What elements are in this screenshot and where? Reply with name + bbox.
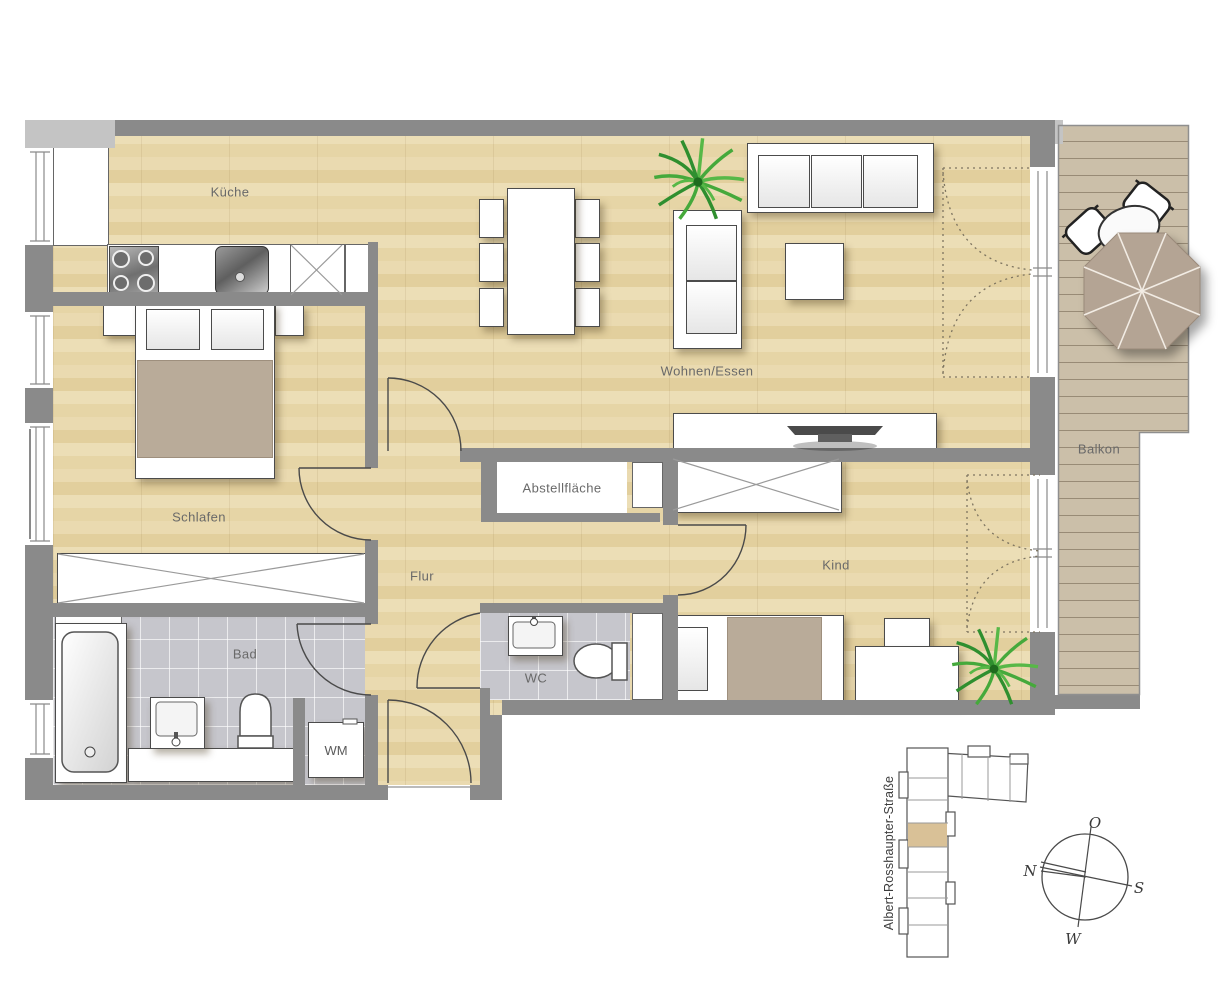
tv-sideboard [673, 413, 937, 450]
wall-segment [368, 242, 378, 294]
wall-segment [481, 462, 497, 513]
compass-south: S [1134, 879, 1144, 897]
pillow [211, 309, 264, 350]
wall-segment [365, 292, 378, 468]
wc-washbasin [508, 616, 563, 656]
wall-segment [481, 513, 660, 522]
stove [109, 246, 159, 296]
dining-chair [479, 243, 504, 282]
duct-shaft [632, 613, 663, 700]
wall-segment [1055, 695, 1140, 709]
floor-plan: WM [0, 0, 1218, 1000]
pillow [146, 309, 200, 350]
washing-machine: WM [308, 722, 364, 778]
window [25, 423, 53, 545]
kitchen-tall-cupboard [290, 244, 345, 298]
room-label-kitchen: Küche [211, 185, 250, 200]
child-duvet [727, 617, 822, 701]
window [25, 700, 53, 758]
wall-segment [502, 700, 1055, 715]
dining-chair [575, 243, 600, 282]
wall-segment [365, 540, 378, 624]
wall-segment [25, 388, 53, 423]
room-label-bedroom: Schlafen [172, 510, 226, 525]
kitchen-side-counter [53, 138, 109, 246]
highlighted-unit [908, 823, 947, 847]
wall-segment [25, 292, 378, 306]
kitchen-sink [215, 246, 269, 295]
child-wardrobe [672, 458, 842, 513]
sofa-cushion [811, 155, 862, 208]
washbasin [150, 697, 205, 749]
wall-segment [115, 120, 1048, 136]
compass-rose: O N S W [1022, 814, 1144, 948]
wall-segment [25, 545, 53, 700]
coffee-table [785, 243, 844, 300]
street-label: Albert-Rosshaupter-Straße [882, 743, 896, 963]
sofa-cushion [863, 155, 918, 208]
room-label-storage: Abstellfläche [523, 481, 602, 496]
room-label-wc: WC [525, 671, 547, 686]
room-label-living: Wohnen/Essen [661, 364, 754, 379]
wall-segment [663, 595, 678, 700]
dining-chair [575, 199, 600, 238]
wall-segment [1030, 377, 1055, 475]
dining-table [507, 188, 575, 335]
sofa-cushion [758, 155, 810, 208]
wall-corner-block [25, 120, 115, 148]
site-plan [899, 746, 1028, 957]
wall-segment [663, 448, 678, 525]
wall-segment [460, 448, 1030, 462]
bathtub [55, 623, 127, 783]
nightstand [275, 305, 304, 336]
wall-segment [480, 715, 502, 800]
dining-chair [575, 288, 600, 327]
washing-machine-label: WM [324, 743, 347, 758]
room-label-bath: Bad [233, 647, 257, 662]
nightstand [103, 305, 136, 336]
dining-chair [479, 199, 504, 238]
wall-segment [293, 698, 305, 785]
armchair-cushion [686, 225, 737, 281]
wall-segment [1030, 120, 1055, 167]
balcony-deck [1058, 125, 1189, 695]
room-label-child: Kind [822, 558, 850, 573]
compass-north: N [1022, 862, 1037, 880]
bath-vanity [128, 748, 295, 782]
wall-segment [480, 688, 490, 715]
wall-segment [25, 785, 388, 800]
desk [855, 646, 959, 704]
armchair-cushion [686, 281, 737, 334]
duct-shaft [632, 462, 663, 508]
balcony-door [1032, 475, 1053, 632]
window [25, 312, 53, 388]
child-pillow [676, 627, 708, 691]
balcony-door [1032, 167, 1053, 377]
compass-west: W [1065, 930, 1082, 948]
room-label-balcony: Balkon [1078, 442, 1120, 457]
wall-segment [365, 695, 378, 787]
wall-segment [25, 603, 365, 617]
dining-chair [479, 288, 504, 327]
wardrobe [57, 553, 367, 606]
compass-east: O [1089, 814, 1101, 832]
wall-segment [1030, 632, 1055, 715]
wall-segment [480, 603, 663, 613]
duvet [137, 360, 273, 458]
room-label-hall: Flur [410, 569, 434, 584]
window [25, 148, 53, 245]
